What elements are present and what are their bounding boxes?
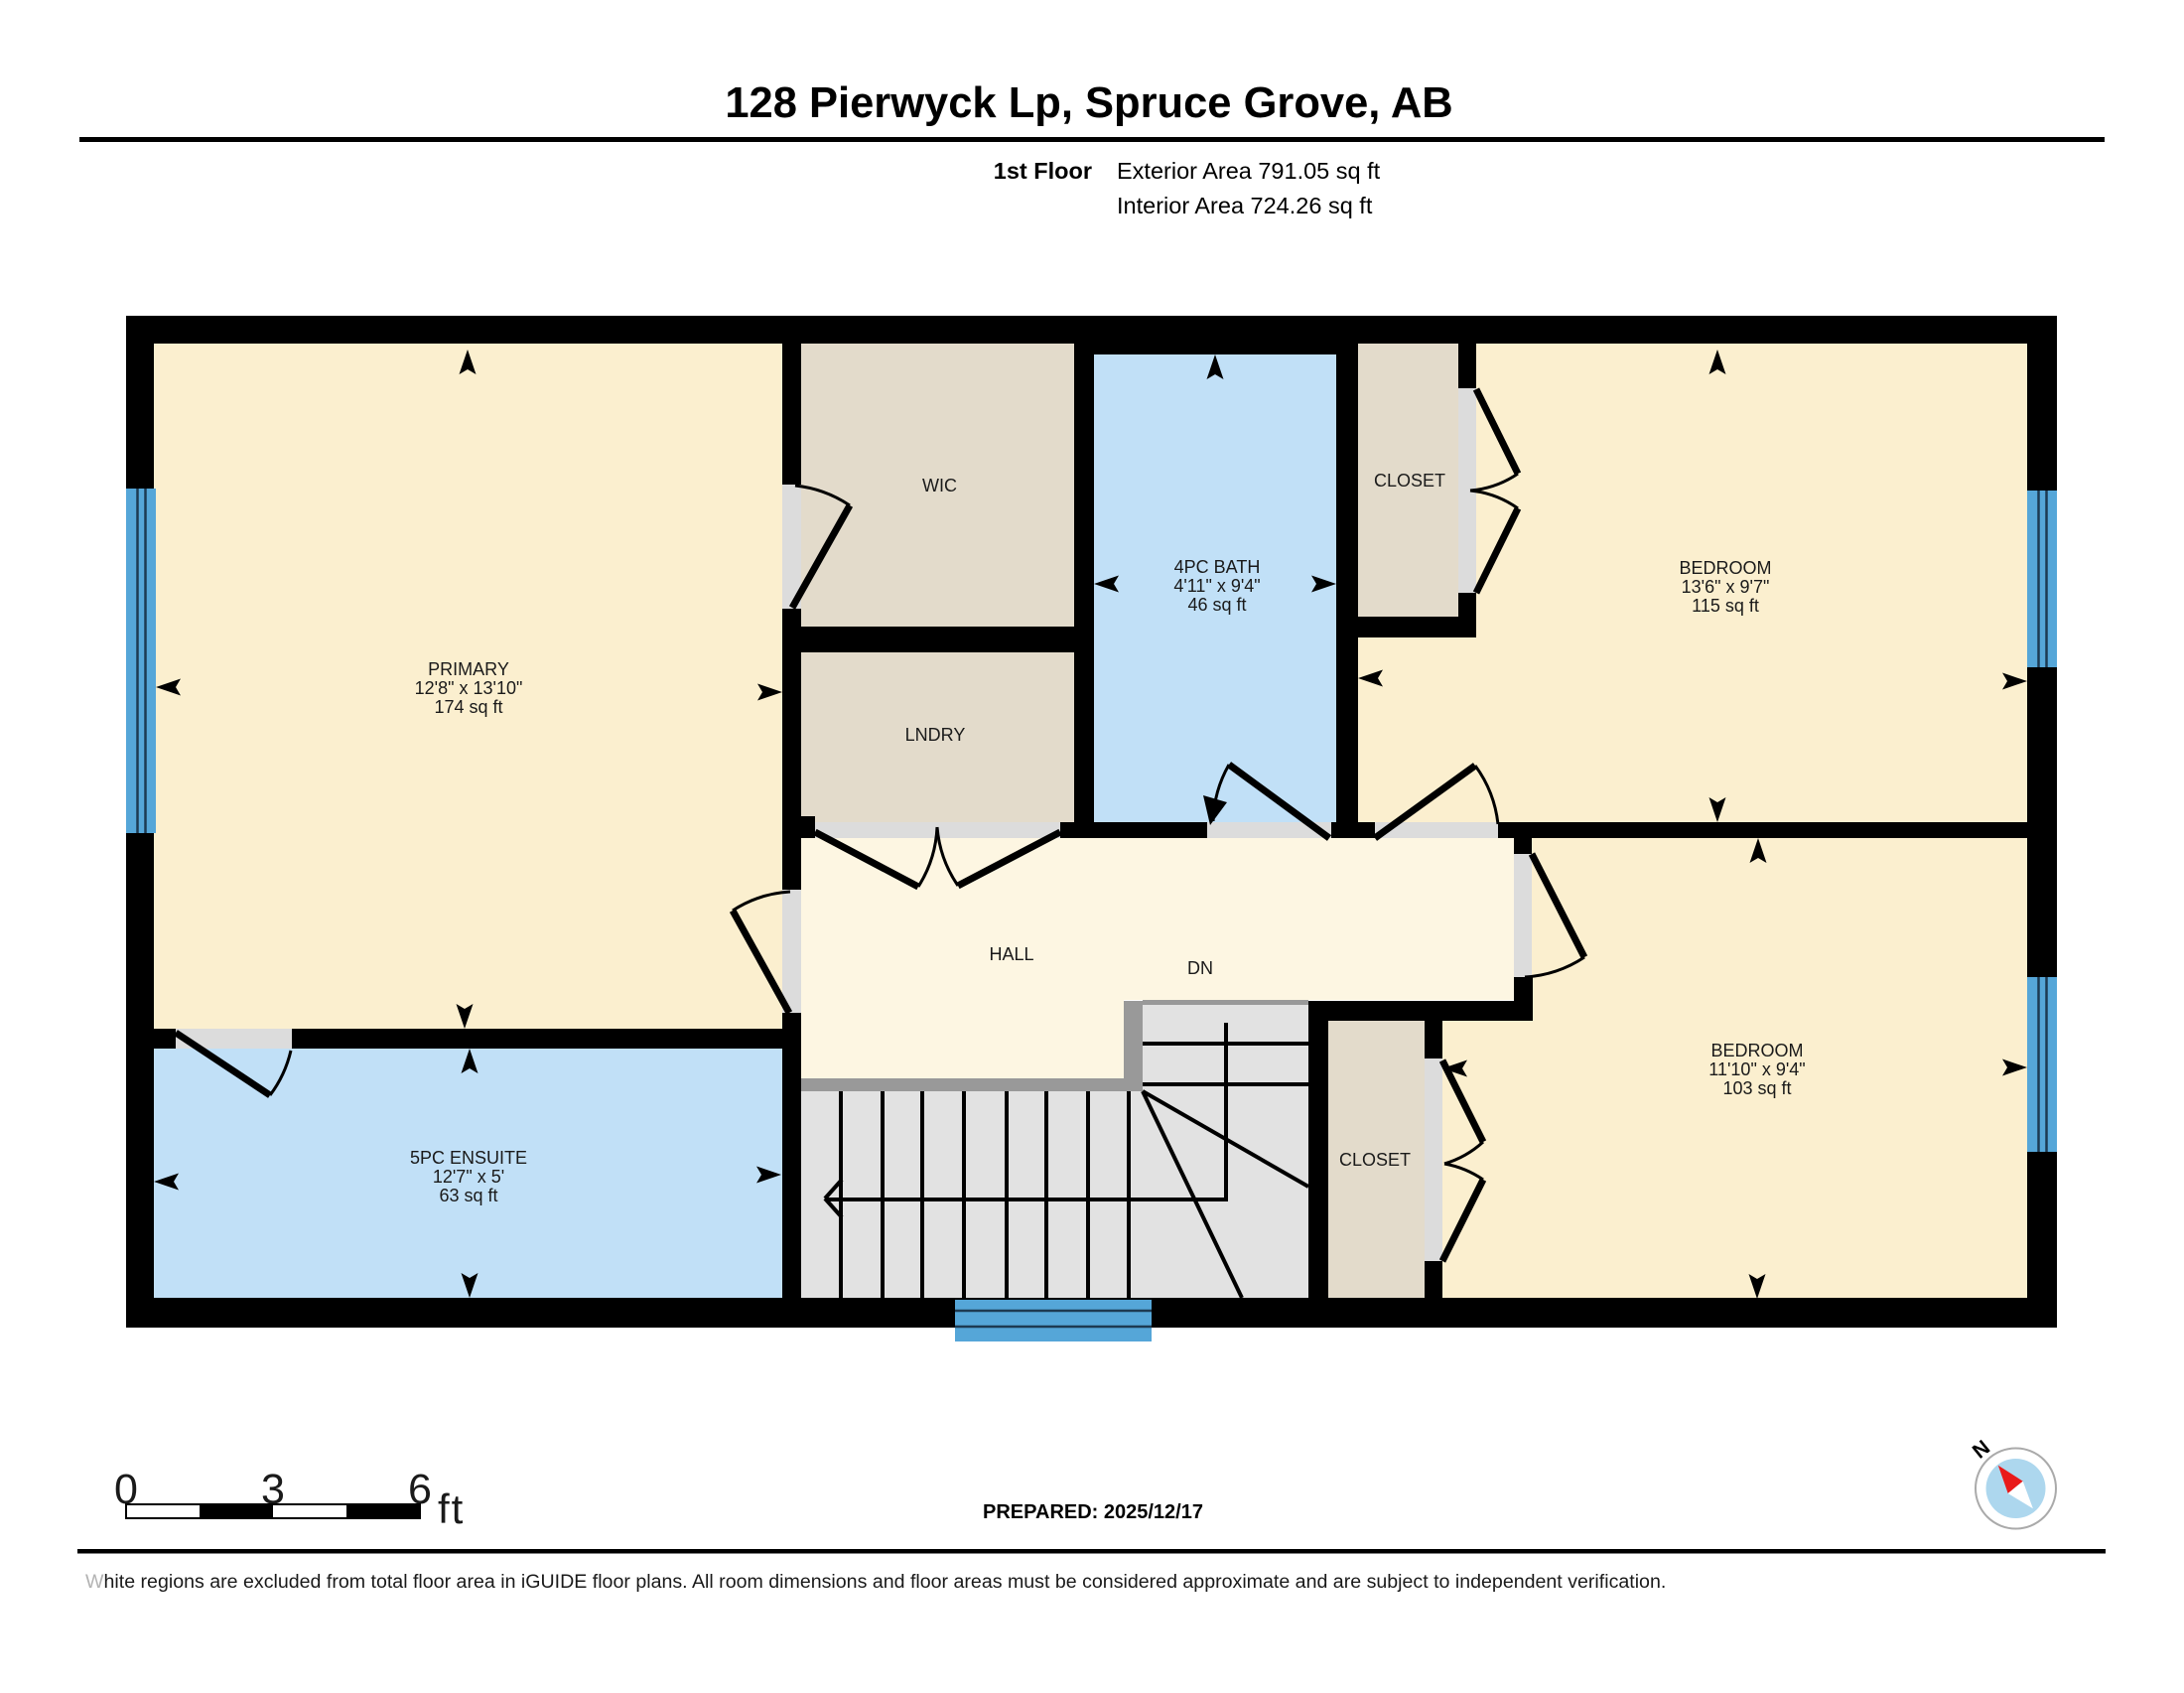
svg-text:1st Floor: 1st Floor [994, 158, 1092, 184]
svg-text:4'11" x 9'4": 4'11" x 9'4" [1173, 576, 1260, 596]
svg-text:BEDROOM: BEDROOM [1679, 558, 1771, 578]
svg-text:Exterior Area 791.05 sq ft: Exterior Area 791.05 sq ft [1117, 158, 1381, 184]
svg-text:103 sq ft: 103 sq ft [1722, 1078, 1791, 1098]
svg-text:63 sq ft: 63 sq ft [439, 1186, 497, 1205]
svg-text:CLOSET: CLOSET [1374, 471, 1445, 491]
svg-text:WIC: WIC [922, 476, 957, 495]
svg-text:12'7" x 5': 12'7" x 5' [433, 1167, 504, 1187]
svg-text:PREPARED: 2025/12/17: PREPARED: 2025/12/17 [983, 1501, 1203, 1523]
svg-text:5PC ENSUITE: 5PC ENSUITE [410, 1148, 527, 1168]
svg-text:LNDRY: LNDRY [905, 725, 966, 745]
svg-text:Interior Area 724.26 sq ft: Interior Area 724.26 sq ft [1117, 193, 1373, 218]
svg-text:46 sq ft: 46 sq ft [1187, 595, 1246, 615]
svg-text:174 sq ft: 174 sq ft [434, 697, 502, 717]
svg-text:DN: DN [1187, 958, 1213, 978]
svg-text:11'10" x 9'4": 11'10" x 9'4" [1708, 1059, 1805, 1079]
svg-text:HALL: HALL [989, 944, 1033, 964]
svg-text:115 sq ft: 115 sq ft [1692, 596, 1759, 616]
svg-text:128 Pierwyck Lp, Spruce Grove,: 128 Pierwyck Lp, Spruce Grove, AB [725, 79, 1452, 127]
svg-text:CLOSET: CLOSET [1339, 1150, 1411, 1170]
svg-text:ft: ft [438, 1485, 465, 1532]
svg-text:12'8" x 13'10": 12'8" x 13'10" [415, 678, 523, 698]
svg-text:13'6" x 9'7": 13'6" x 9'7" [1682, 577, 1770, 597]
svg-text:White regions are excluded fro: White regions are excluded from total fl… [85, 1571, 1666, 1593]
svg-text:4PC BATH: 4PC BATH [1174, 557, 1261, 577]
svg-text:BEDROOM: BEDROOM [1710, 1041, 1803, 1060]
svg-text:PRIMARY: PRIMARY [428, 659, 509, 679]
